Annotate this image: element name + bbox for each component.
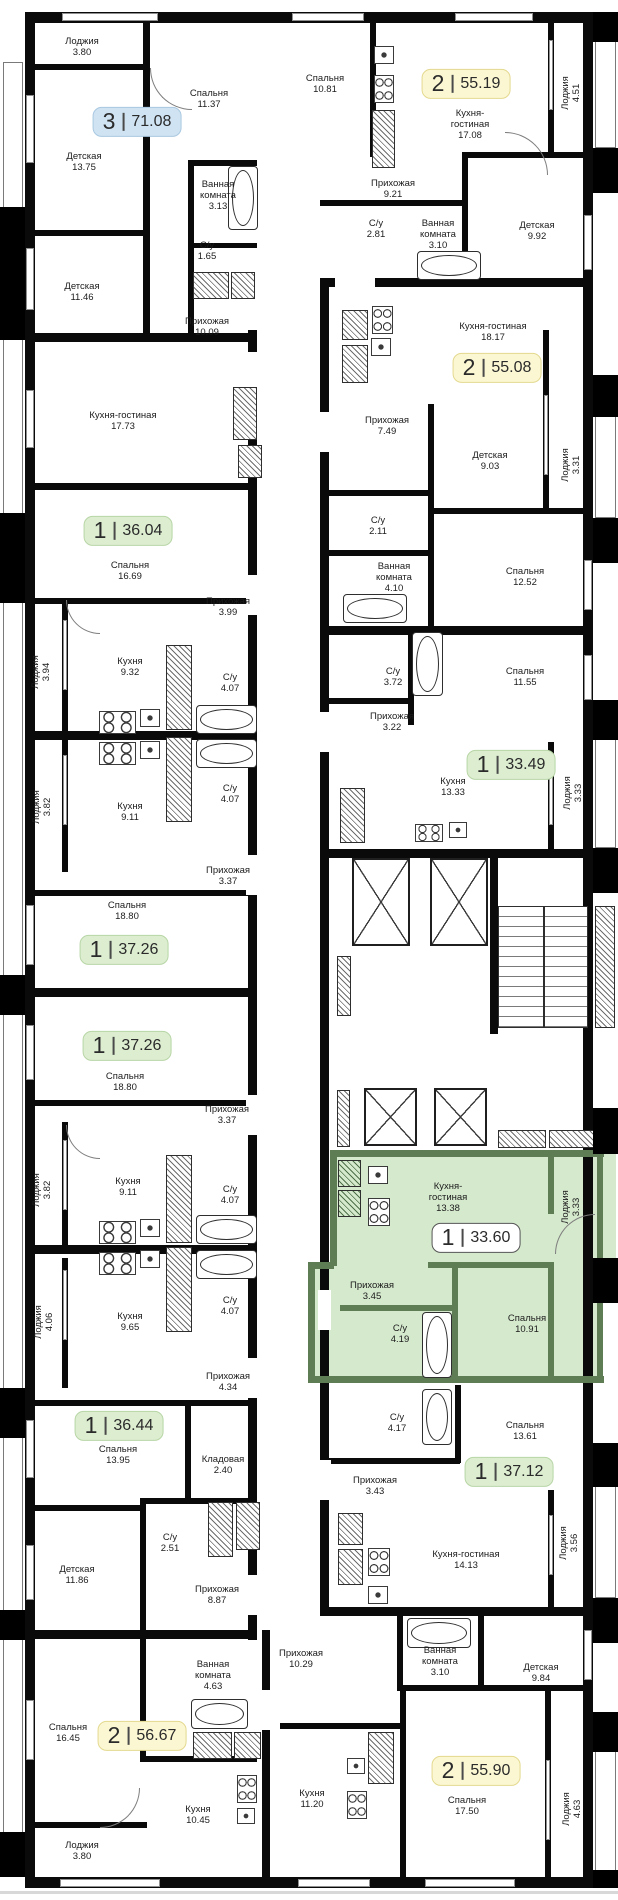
room-name: Лоджия bbox=[562, 1792, 573, 1826]
room-area: 3.33 bbox=[572, 1198, 583, 1217]
room-area: 10.81 bbox=[313, 85, 337, 96]
room-label: С/у4.07 bbox=[221, 1296, 240, 1318]
door-swing-icon bbox=[66, 600, 100, 634]
window bbox=[584, 560, 592, 610]
sink-fixture bbox=[140, 1219, 160, 1237]
badge-divider bbox=[451, 74, 453, 92]
window bbox=[26, 1545, 34, 1600]
badge-divider bbox=[461, 1761, 463, 1779]
room-area: 18.17 bbox=[481, 333, 505, 344]
highlight-wall-segment bbox=[548, 1150, 554, 1214]
wall-segment bbox=[490, 849, 498, 1034]
balcony-strip bbox=[595, 738, 616, 848]
room-area: 3.43 bbox=[366, 1487, 385, 1498]
apartment-badge: 137.26 bbox=[83, 1031, 172, 1061]
room-name: Спальня bbox=[506, 567, 544, 578]
wall-segment bbox=[25, 64, 147, 70]
shaft-hatch bbox=[595, 906, 615, 1028]
room-area: 11.86 bbox=[65, 1576, 88, 1587]
room-name: Лоджия bbox=[561, 448, 572, 482]
room-label: С/у2.11 bbox=[369, 516, 387, 538]
wall-segment bbox=[185, 1405, 191, 1502]
shaft-hatch bbox=[166, 737, 192, 822]
door-opening bbox=[318, 412, 331, 452]
window bbox=[63, 1270, 67, 1340]
room-label: Прихожая4.34 bbox=[206, 1372, 250, 1394]
room-name: Детская bbox=[472, 451, 507, 462]
window bbox=[584, 215, 592, 270]
door-opening bbox=[318, 712, 331, 752]
room-label: Лоджия3.56 bbox=[559, 1526, 581, 1560]
door-opening bbox=[260, 1690, 272, 1730]
door-opening bbox=[335, 276, 375, 289]
badge-divider bbox=[482, 358, 484, 376]
balcony-pier bbox=[593, 1258, 618, 1303]
apartment-badge: 133.60 bbox=[432, 1223, 521, 1253]
room-area: 3.37 bbox=[218, 1116, 237, 1127]
room-label: С/у4.19 bbox=[391, 1324, 410, 1346]
page-edge-line bbox=[0, 1891, 618, 1894]
room-area: 13.75 bbox=[72, 163, 96, 174]
room-name: Детская bbox=[64, 282, 99, 293]
room-label: С/у4.07 bbox=[221, 1185, 240, 1207]
wall-segment bbox=[320, 1607, 593, 1616]
apartment-badge: 256.67 bbox=[98, 1721, 187, 1751]
window bbox=[455, 13, 533, 21]
elevator-shaft bbox=[430, 858, 488, 946]
room-label: Детская9.92 bbox=[519, 221, 554, 243]
wall-segment bbox=[320, 849, 593, 858]
room-label: Лоджия3.33 bbox=[561, 1190, 583, 1224]
apartment-rooms-count: 2 bbox=[463, 355, 476, 380]
shaft-hatch bbox=[342, 310, 368, 340]
room-label: Спальня16.69 bbox=[111, 561, 149, 583]
sink-fixture bbox=[374, 46, 394, 64]
room-label: Лоджия3.80 bbox=[65, 37, 99, 59]
room-area: 17.50 bbox=[455, 1807, 479, 1818]
room-name: Прихожая bbox=[370, 712, 414, 723]
room-area: 4.06 bbox=[45, 1313, 56, 1332]
room-area: 1.65 bbox=[198, 252, 217, 263]
room-area: 14.13 bbox=[454, 1561, 478, 1572]
balcony-pier bbox=[0, 513, 25, 603]
room-label: Кухня- гостиная17.08 bbox=[451, 109, 490, 141]
room-name: Спальня bbox=[108, 901, 146, 912]
room-area: 3.82 bbox=[43, 798, 54, 817]
room-name: Спальня bbox=[111, 561, 149, 572]
balcony-pier bbox=[0, 1388, 25, 1438]
bathtub-fixture bbox=[412, 632, 443, 696]
room-name: Прихожая bbox=[206, 597, 250, 608]
room-name: Прихожая bbox=[195, 1585, 239, 1596]
room-label: Лоджия3.33 bbox=[563, 776, 585, 810]
room-label: Спальня13.61 bbox=[506, 1421, 544, 1443]
room-label: Прихожая10.29 bbox=[279, 1649, 323, 1671]
stove-fixture bbox=[99, 1221, 136, 1244]
room-name: Кухня bbox=[115, 1177, 140, 1188]
balcony-pier bbox=[593, 848, 618, 893]
room-area: 2.40 bbox=[214, 1466, 233, 1477]
room-name: Лоджия bbox=[65, 37, 99, 48]
shaft-hatch bbox=[166, 1247, 192, 1332]
room-label: Кухня10.45 bbox=[185, 1805, 210, 1827]
wall-segment bbox=[397, 1607, 403, 1691]
room-area: 16.45 bbox=[56, 1734, 80, 1745]
shaft-hatch bbox=[342, 345, 368, 383]
room-area: 18.80 bbox=[115, 912, 139, 923]
room-area: 3.10 bbox=[431, 1668, 450, 1679]
apartment-area: 37.26 bbox=[118, 941, 158, 959]
room-name: Спальня bbox=[508, 1314, 546, 1325]
room-area: 13.95 bbox=[106, 1456, 130, 1467]
room-area: 13.33 bbox=[441, 788, 465, 799]
room-name: Лоджия bbox=[559, 1526, 570, 1560]
wall-segment bbox=[140, 1498, 146, 1632]
shaft-hatch bbox=[233, 387, 257, 440]
stove-fixture bbox=[99, 742, 136, 765]
door-opening bbox=[318, 1460, 331, 1500]
sink-fixture bbox=[140, 709, 160, 727]
room-area: 4.63 bbox=[204, 1682, 223, 1693]
room-name: С/у bbox=[223, 1296, 237, 1307]
elevator-shaft bbox=[352, 858, 410, 946]
room-name: Кухня bbox=[185, 1805, 210, 1816]
apartment-area: 55.08 bbox=[491, 359, 531, 377]
window bbox=[292, 13, 364, 21]
room-label: Спальня18.80 bbox=[106, 1072, 144, 1094]
stove-fixture bbox=[347, 1791, 367, 1819]
shaft-hatch bbox=[337, 956, 351, 1016]
window bbox=[26, 1420, 34, 1478]
staircase bbox=[498, 906, 588, 1028]
room-area: 4.07 bbox=[221, 1307, 240, 1318]
balcony-pier bbox=[0, 207, 25, 340]
room-name: Спальня bbox=[99, 1445, 137, 1456]
sink-fixture bbox=[140, 741, 160, 759]
balcony-pier bbox=[593, 12, 618, 42]
room-label: Кладовая2.40 bbox=[202, 1455, 245, 1477]
room-label: Лоджия3.31 bbox=[561, 448, 583, 482]
window bbox=[63, 755, 67, 825]
apartment-area: 36.04 bbox=[122, 522, 162, 540]
room-label: Кухня11.20 bbox=[299, 1789, 324, 1811]
room-area: 4.07 bbox=[221, 684, 240, 695]
room-area: 3.80 bbox=[73, 1852, 92, 1863]
room-label: Спальня10.91 bbox=[508, 1314, 546, 1336]
room-name: Кухня bbox=[117, 1312, 142, 1323]
balcony-pier bbox=[593, 700, 618, 740]
sink-fixture bbox=[237, 1808, 255, 1824]
wall-segment bbox=[25, 988, 257, 997]
apartment-rooms-count: 3 bbox=[103, 109, 116, 134]
wall-segment bbox=[25, 230, 147, 236]
apartment-badge: 255.90 bbox=[432, 1756, 521, 1786]
shaft-hatch bbox=[208, 1502, 233, 1557]
balcony-pier bbox=[0, 1832, 25, 1877]
wall-segment bbox=[280, 1723, 402, 1729]
balcony-pier bbox=[593, 148, 618, 193]
room-name: С/у bbox=[393, 1324, 407, 1335]
room-area: 13.61 bbox=[513, 1432, 537, 1443]
room-label: Лоджия3.94 bbox=[31, 655, 53, 689]
wall-segment bbox=[455, 1385, 461, 1463]
room-name: Кухня-гостиная bbox=[89, 411, 156, 422]
wall-segment bbox=[320, 278, 329, 1616]
room-area: 4.34 bbox=[219, 1383, 238, 1394]
balcony-pier bbox=[593, 518, 618, 563]
room-name: Спальня bbox=[448, 1796, 486, 1807]
room-name: Спальня bbox=[49, 1723, 87, 1734]
window bbox=[60, 1879, 160, 1887]
room-name: С/у bbox=[371, 516, 385, 527]
shaft-hatch bbox=[234, 1732, 261, 1759]
room-name: Спальня bbox=[106, 1072, 144, 1083]
wall-segment bbox=[320, 550, 430, 556]
room-name: Прихожая bbox=[371, 179, 415, 190]
shaft-hatch bbox=[498, 1130, 546, 1148]
room-name: С/у bbox=[200, 241, 214, 252]
room-area: 2.51 bbox=[161, 1544, 180, 1555]
room-area: 4.51 bbox=[572, 84, 583, 103]
balcony-pier bbox=[593, 375, 618, 417]
room-name: Спальня bbox=[506, 1421, 544, 1432]
window bbox=[26, 248, 34, 310]
room-name: Лоджия bbox=[563, 776, 574, 810]
room-name: Кухня bbox=[299, 1789, 324, 1800]
apartment-badge: 137.26 bbox=[80, 935, 169, 965]
shaft-hatch bbox=[166, 1155, 192, 1243]
room-name: С/у bbox=[223, 1185, 237, 1196]
shaft-hatch bbox=[193, 1732, 232, 1759]
elevator-shaft bbox=[434, 1088, 487, 1146]
room-area: 2.11 bbox=[369, 527, 387, 538]
room-area: 3.13 bbox=[209, 202, 228, 213]
room-label: Прихожая3.45 bbox=[350, 1281, 394, 1303]
wall-segment bbox=[25, 1400, 255, 1406]
bathtub-fixture bbox=[191, 1699, 248, 1729]
room-area: 4.19 bbox=[391, 1335, 410, 1346]
bathtub-fixture bbox=[196, 1215, 257, 1244]
badge-divider bbox=[122, 112, 124, 130]
room-label: Прихожая3.43 bbox=[353, 1476, 397, 1498]
room-area: 12.52 bbox=[513, 578, 537, 589]
room-label: С/у4.07 bbox=[221, 673, 240, 695]
window bbox=[26, 95, 34, 163]
room-area: 9.32 bbox=[121, 668, 140, 679]
room-label: Ванная комната3.13 bbox=[200, 180, 236, 212]
room-name: Кухня bbox=[117, 802, 142, 813]
room-label: Кухня-гостиная14.13 bbox=[432, 1550, 499, 1572]
room-name: Прихожая bbox=[185, 317, 229, 328]
room-name: Лоджия bbox=[31, 655, 42, 689]
room-name: Лоджия bbox=[32, 1173, 43, 1207]
room-area: 3.45 bbox=[363, 1292, 382, 1303]
room-label: С/у4.17 bbox=[388, 1413, 407, 1435]
room-label: Кухня13.33 bbox=[440, 777, 465, 799]
room-label: Лоджия4.63 bbox=[562, 1792, 584, 1826]
room-name: Кухня- гостиная bbox=[429, 1182, 468, 1203]
room-area: 9.11 bbox=[121, 813, 139, 824]
room-name: С/у bbox=[163, 1533, 177, 1544]
bathtub-fixture bbox=[422, 1312, 452, 1378]
shaft-hatch bbox=[549, 1130, 594, 1148]
room-label: Спальня16.45 bbox=[49, 1723, 87, 1745]
room-label: Ванная комната4.63 bbox=[195, 1660, 231, 1692]
window bbox=[26, 905, 34, 965]
room-label: Прихожая3.22 bbox=[370, 712, 414, 734]
room-area: 2.81 bbox=[367, 230, 386, 241]
apartment-badge: 255.19 bbox=[422, 69, 511, 99]
room-area: 4.10 bbox=[385, 584, 404, 595]
room-label: Спальня12.52 bbox=[506, 567, 544, 589]
bathtub-fixture bbox=[343, 594, 407, 623]
room-name: Лоджия bbox=[561, 76, 572, 110]
room-label: Лоджия3.80 bbox=[65, 1841, 99, 1863]
wall-segment bbox=[320, 626, 593, 635]
wall-segment bbox=[320, 1458, 460, 1464]
stove-fixture bbox=[374, 75, 394, 103]
room-area: 9.65 bbox=[121, 1323, 140, 1334]
window bbox=[544, 395, 548, 475]
room-label: Детская11.46 bbox=[64, 282, 99, 304]
room-name: С/у bbox=[223, 784, 237, 795]
room-area: 4.63 bbox=[573, 1800, 584, 1819]
wall-segment bbox=[25, 1505, 145, 1511]
room-label: Лоджия3.82 bbox=[32, 790, 54, 824]
wall-segment bbox=[25, 890, 255, 896]
room-name: Ванная комната bbox=[200, 180, 236, 201]
room-label: Спальня11.55 bbox=[506, 667, 544, 689]
apartment-rooms-count: 1 bbox=[94, 518, 107, 543]
window bbox=[549, 40, 553, 110]
shaft-hatch bbox=[338, 1513, 363, 1545]
wall-segment bbox=[25, 1822, 147, 1828]
room-label: Кухня9.65 bbox=[117, 1312, 142, 1334]
door-opening bbox=[318, 1290, 331, 1330]
bathtub-fixture bbox=[196, 1250, 257, 1279]
bathtub-fixture bbox=[407, 1618, 471, 1648]
apartment-rooms-count: 1 bbox=[475, 1459, 488, 1484]
highlight-wall-segment bbox=[330, 1150, 337, 1266]
room-name: С/у bbox=[390, 1413, 404, 1424]
stove-fixture bbox=[415, 824, 443, 842]
apartment-area: 71.08 bbox=[131, 113, 171, 131]
room-label: Детская9.84 bbox=[523, 1663, 558, 1685]
room-label: Детская11.86 bbox=[59, 1565, 94, 1587]
apartment-area: 56.67 bbox=[136, 1727, 176, 1745]
apartment-rooms-count: 2 bbox=[432, 71, 445, 96]
room-label: Прихожая10.09 bbox=[185, 317, 229, 339]
room-label: Прихожая9.21 bbox=[371, 179, 415, 201]
room-label: С/у2.81 bbox=[367, 219, 386, 241]
room-name: Детская bbox=[523, 1663, 558, 1674]
wall-segment bbox=[25, 483, 255, 490]
window bbox=[26, 390, 34, 448]
balcony-strip bbox=[595, 1485, 616, 1598]
room-area: 11.55 bbox=[513, 678, 536, 689]
room-area: 10.45 bbox=[186, 1816, 210, 1827]
door-swing-icon bbox=[150, 68, 192, 110]
room-area: 8.87 bbox=[208, 1596, 227, 1607]
badge-divider bbox=[112, 1036, 114, 1054]
highlight-wall-segment bbox=[548, 1262, 554, 1383]
room-area: 7.49 bbox=[378, 427, 397, 438]
room-label: Спальня13.95 bbox=[99, 1445, 137, 1467]
wall-segment bbox=[478, 1607, 484, 1691]
apartment-area: 36.44 bbox=[113, 1417, 153, 1435]
balcony-pier bbox=[0, 975, 25, 1015]
shaft-hatch bbox=[231, 272, 255, 299]
shaft-hatch bbox=[338, 1190, 361, 1217]
room-name: Ванная комната bbox=[195, 1660, 231, 1681]
balcony-strip bbox=[595, 1750, 616, 1872]
wall-segment bbox=[262, 1630, 270, 1877]
room-area: 9.21 bbox=[384, 190, 403, 201]
bathtub-fixture bbox=[196, 739, 257, 768]
apartment-rooms-count: 2 bbox=[108, 1723, 121, 1748]
shaft-hatch bbox=[338, 1549, 363, 1585]
window bbox=[546, 1760, 550, 1840]
wall-segment bbox=[143, 12, 150, 333]
room-area: 9.11 bbox=[119, 1188, 137, 1199]
room-area: 3.94 bbox=[42, 663, 53, 682]
apartment-badge: 371.08 bbox=[93, 107, 182, 137]
floor-plan: Лоджия3.80Спальня11.37Детская13.75Ванная… bbox=[0, 0, 618, 1900]
room-area: 3.10 bbox=[429, 241, 448, 252]
room-area: 9.03 bbox=[481, 462, 500, 473]
room-area: 3.80 bbox=[73, 48, 92, 59]
room-name: Прихожая bbox=[206, 866, 250, 877]
wall-segment bbox=[400, 1688, 406, 1878]
room-area: 3.33 bbox=[574, 784, 585, 803]
room-label: Кухня9.32 bbox=[117, 657, 142, 679]
wall-segment bbox=[428, 508, 593, 514]
highlight-wall-segment bbox=[340, 1305, 452, 1311]
apartment-area: 55.90 bbox=[470, 1762, 510, 1780]
wall-segment bbox=[248, 330, 257, 1640]
highlight-wall-segment bbox=[452, 1262, 458, 1382]
stove-fixture bbox=[237, 1775, 257, 1803]
room-label: Спальня10.81 bbox=[306, 74, 344, 96]
shaft-hatch bbox=[338, 1160, 361, 1187]
apartment-rooms-count: 1 bbox=[85, 1413, 98, 1438]
door-swing-icon bbox=[505, 132, 548, 175]
room-area: 10.29 bbox=[289, 1660, 313, 1671]
room-name: Прихожая bbox=[205, 1105, 249, 1116]
room-label: Прихожая3.99 bbox=[206, 597, 250, 619]
apartment-area: 37.12 bbox=[503, 1463, 543, 1481]
room-label: Ванная комната3.10 bbox=[420, 219, 456, 251]
room-label: С/у4.07 bbox=[221, 784, 240, 806]
shaft-hatch bbox=[368, 1732, 394, 1784]
room-name: Кухня bbox=[117, 657, 142, 668]
window bbox=[26, 1025, 34, 1080]
room-name: Ванная комната bbox=[422, 1646, 458, 1667]
room-name: С/у bbox=[369, 219, 383, 230]
room-area: 3.22 bbox=[383, 723, 402, 734]
badge-divider bbox=[494, 1462, 496, 1480]
room-name: Спальня bbox=[306, 74, 344, 85]
room-label: Прихожая3.37 bbox=[205, 1105, 249, 1127]
room-area: 3.99 bbox=[219, 608, 238, 619]
apartment-area: 55.19 bbox=[460, 75, 500, 93]
highlight-wall-segment bbox=[330, 1150, 604, 1157]
room-name: С/у bbox=[386, 667, 400, 678]
sink-fixture bbox=[368, 1166, 388, 1184]
window bbox=[63, 620, 67, 690]
room-area: 9.84 bbox=[532, 1674, 551, 1685]
room-area: 10.09 bbox=[195, 328, 219, 339]
